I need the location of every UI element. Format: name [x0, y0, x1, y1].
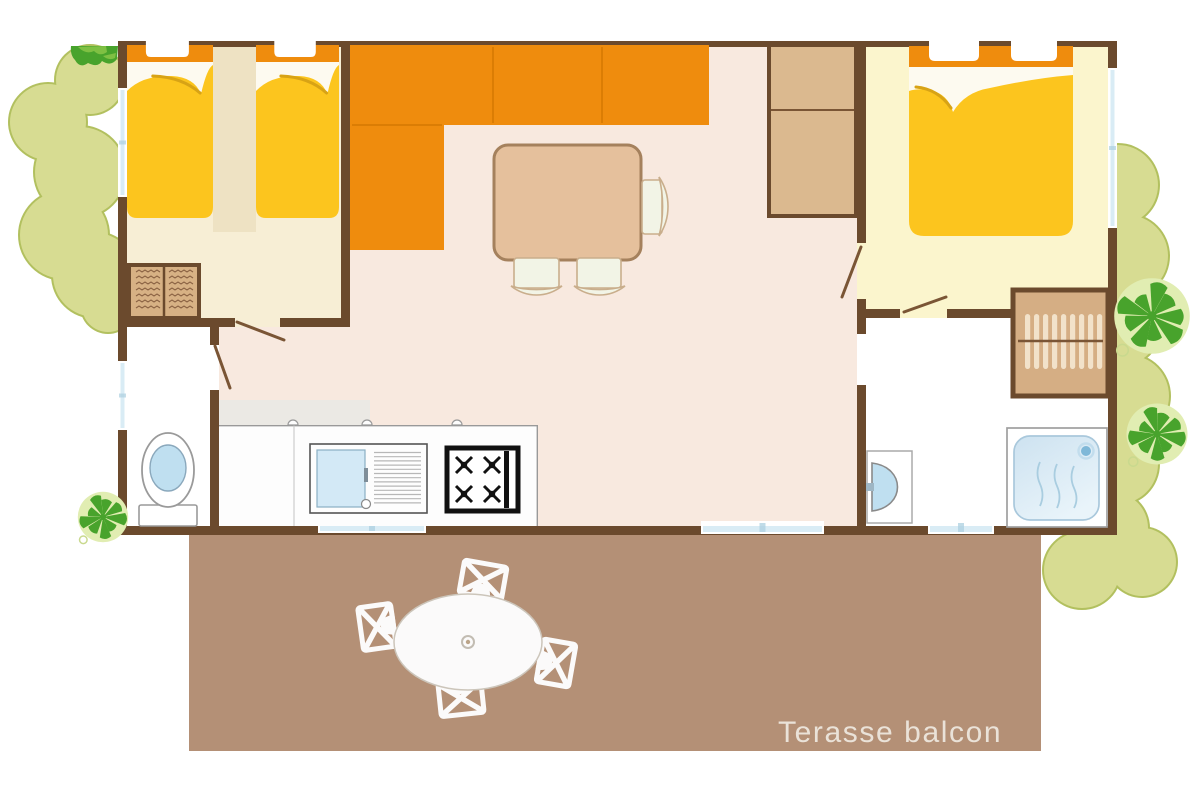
svg-text:Terasse balcon: Terasse balcon	[778, 716, 1002, 749]
